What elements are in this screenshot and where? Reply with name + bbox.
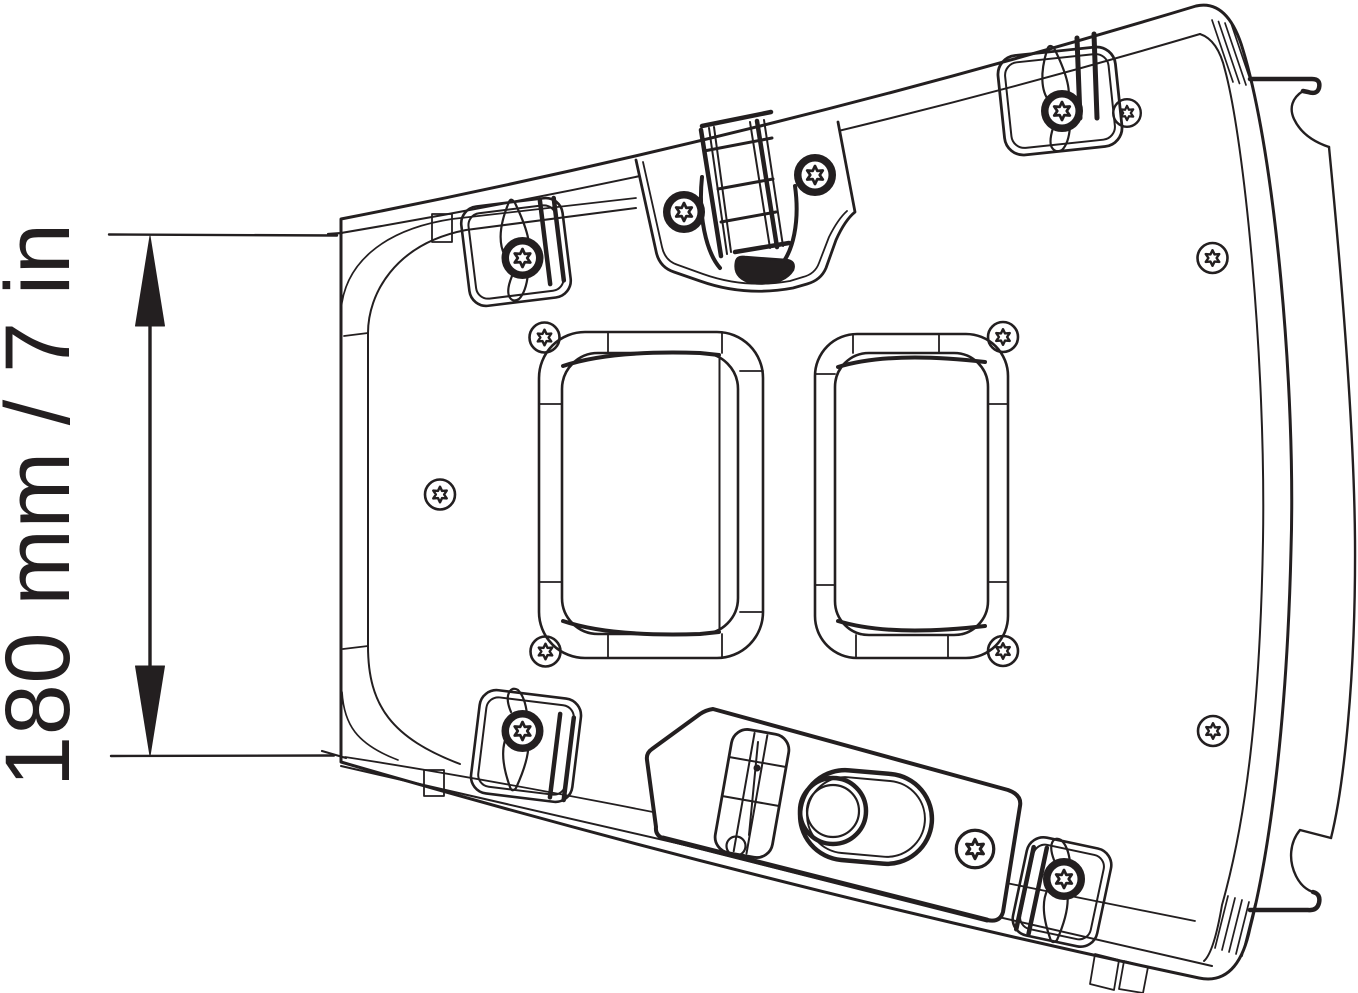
svg-text:180 mm / 7 in: 180 mm / 7 in [0,223,89,788]
